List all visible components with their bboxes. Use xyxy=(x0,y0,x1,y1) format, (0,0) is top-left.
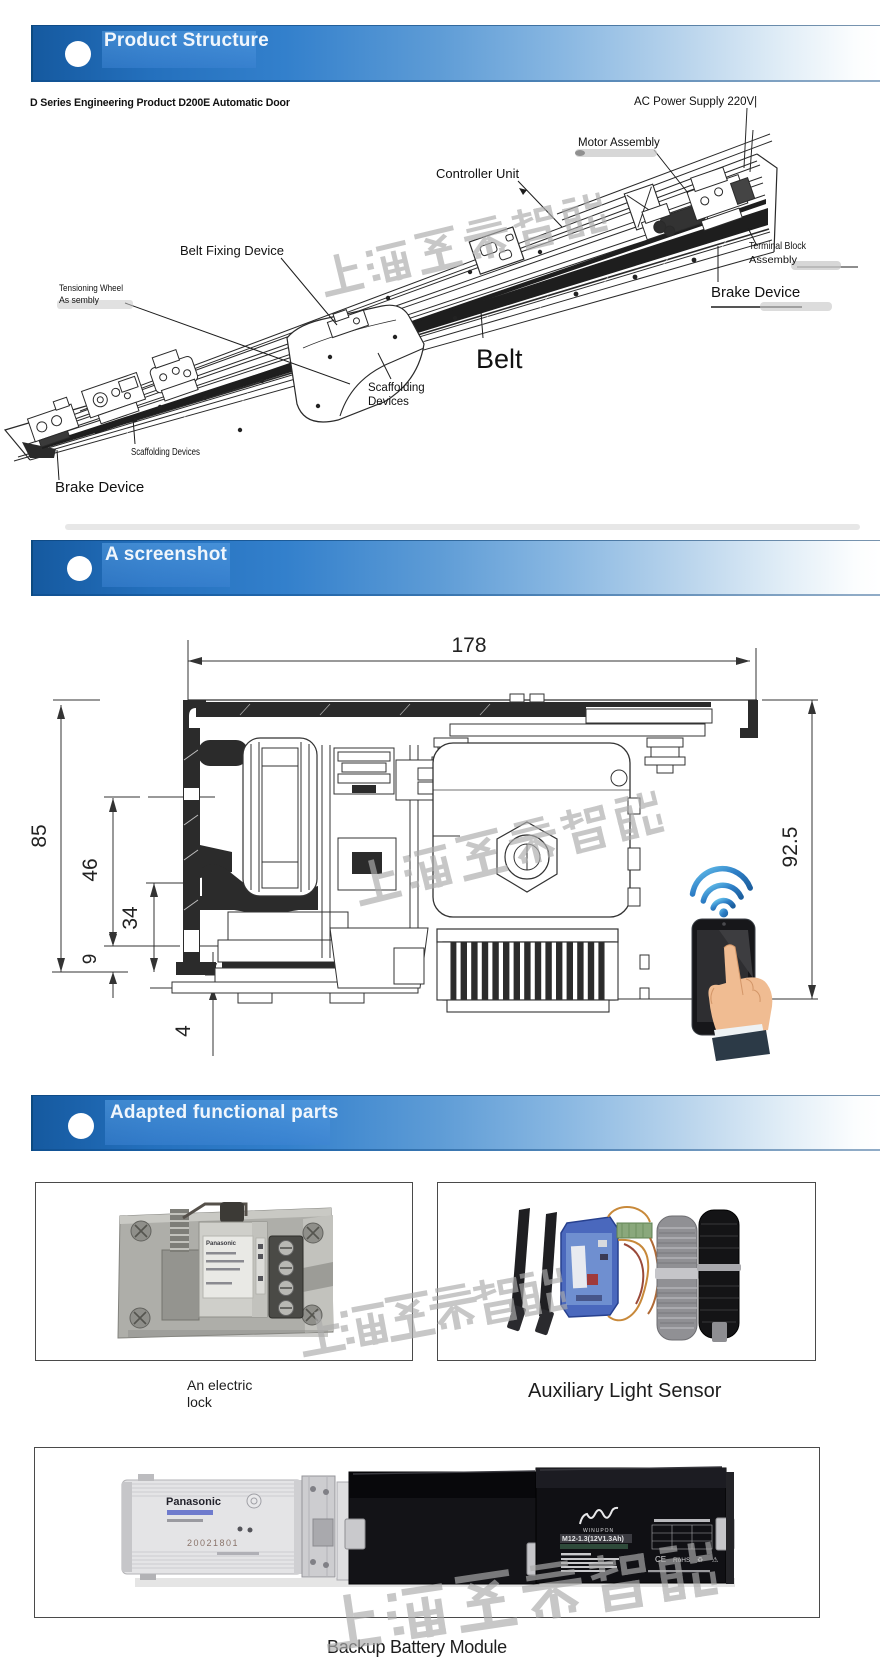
svg-text:Scaffolding: Scaffolding xyxy=(368,382,425,394)
svg-text:9: 9 xyxy=(80,954,101,965)
svg-text:Scaffolding Devices: Scaffolding Devices xyxy=(131,447,200,458)
svg-text:Controller Unit: Controller Unit xyxy=(436,166,519,181)
svg-text:Belt: Belt xyxy=(476,344,523,374)
svg-text:M12-1.3(12V1.3Ah): M12-1.3(12V1.3Ah) xyxy=(562,1536,624,1543)
svg-text:D Series Engineering Product D: D Series Engineering Product D200E Autom… xyxy=(30,97,290,109)
svg-text:⚠: ⚠ xyxy=(712,1556,718,1564)
svg-text:Tensioning Wheel: Tensioning Wheel xyxy=(59,283,123,294)
svg-text:Motor Assembly: Motor Assembly xyxy=(578,137,660,149)
svg-text:178: 178 xyxy=(451,634,486,657)
svg-text:Panasonic: Panasonic xyxy=(166,1496,221,1508)
svg-text:Devices: Devices xyxy=(368,396,409,408)
svg-text:Brake Device: Brake Device xyxy=(711,284,800,301)
svg-text:WINUPON: WINUPON xyxy=(583,1528,614,1534)
svg-text:34: 34 xyxy=(119,906,142,930)
svg-text:20021801: 20021801 xyxy=(187,1538,239,1548)
svg-text:AC Power Supply 220V|: AC Power Supply 220V| xyxy=(634,96,757,108)
svg-text:Panasonic: Panasonic xyxy=(206,1241,237,1247)
svg-text:Belt Fixing Device: Belt Fixing Device xyxy=(180,243,284,258)
svg-text:As sembly: As sembly xyxy=(59,295,99,306)
svg-text:85: 85 xyxy=(28,824,51,847)
svg-text:46: 46 xyxy=(79,858,102,881)
svg-text:Assembly: Assembly xyxy=(749,254,798,266)
svg-text:Terminal Block: Terminal Block xyxy=(749,240,807,252)
svg-text:92.5: 92.5 xyxy=(779,827,802,868)
svg-text:4: 4 xyxy=(172,1025,195,1037)
svg-text:Brake Device: Brake Device xyxy=(55,479,144,496)
